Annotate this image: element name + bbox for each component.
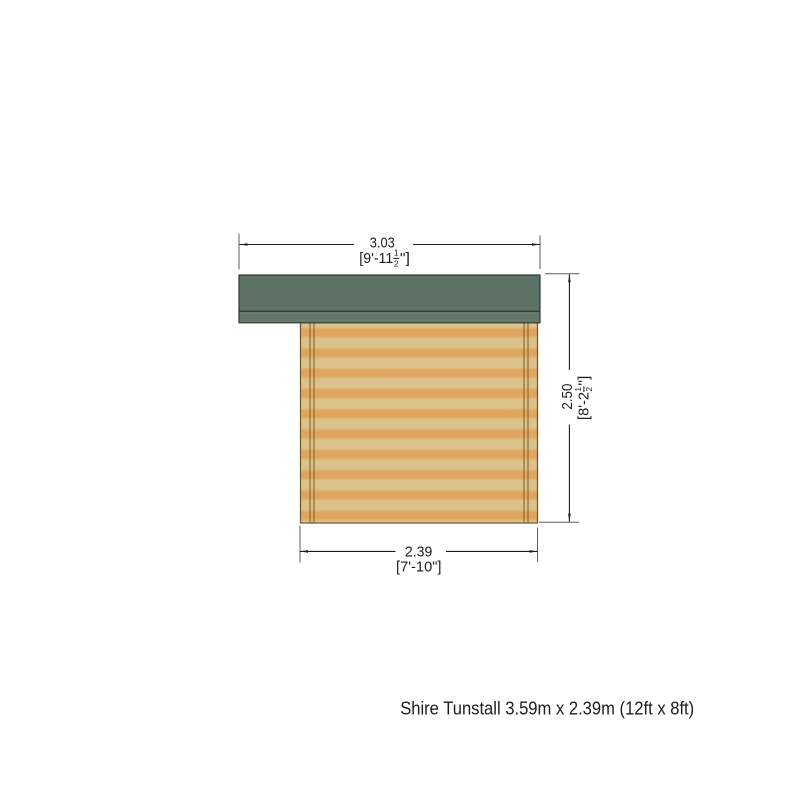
svg-text:1: 1 [573,387,583,392]
svg-text:Shire Tunstall 3.59m x 2.39m (: Shire Tunstall 3.59m x 2.39m (12ft x 8ft… [400,699,694,719]
svg-text:2: 2 [394,258,399,268]
svg-text:"]: "] [576,376,593,386]
svg-text:2: 2 [584,387,594,392]
svg-text:"]: "] [400,250,410,267]
svg-text:[9'-11: [9'-11 [359,250,393,267]
svg-text:[7'-10"]: [7'-10"] [396,559,442,576]
svg-text:1: 1 [394,247,399,257]
svg-text:[8'-2: [8'-2 [576,392,593,420]
